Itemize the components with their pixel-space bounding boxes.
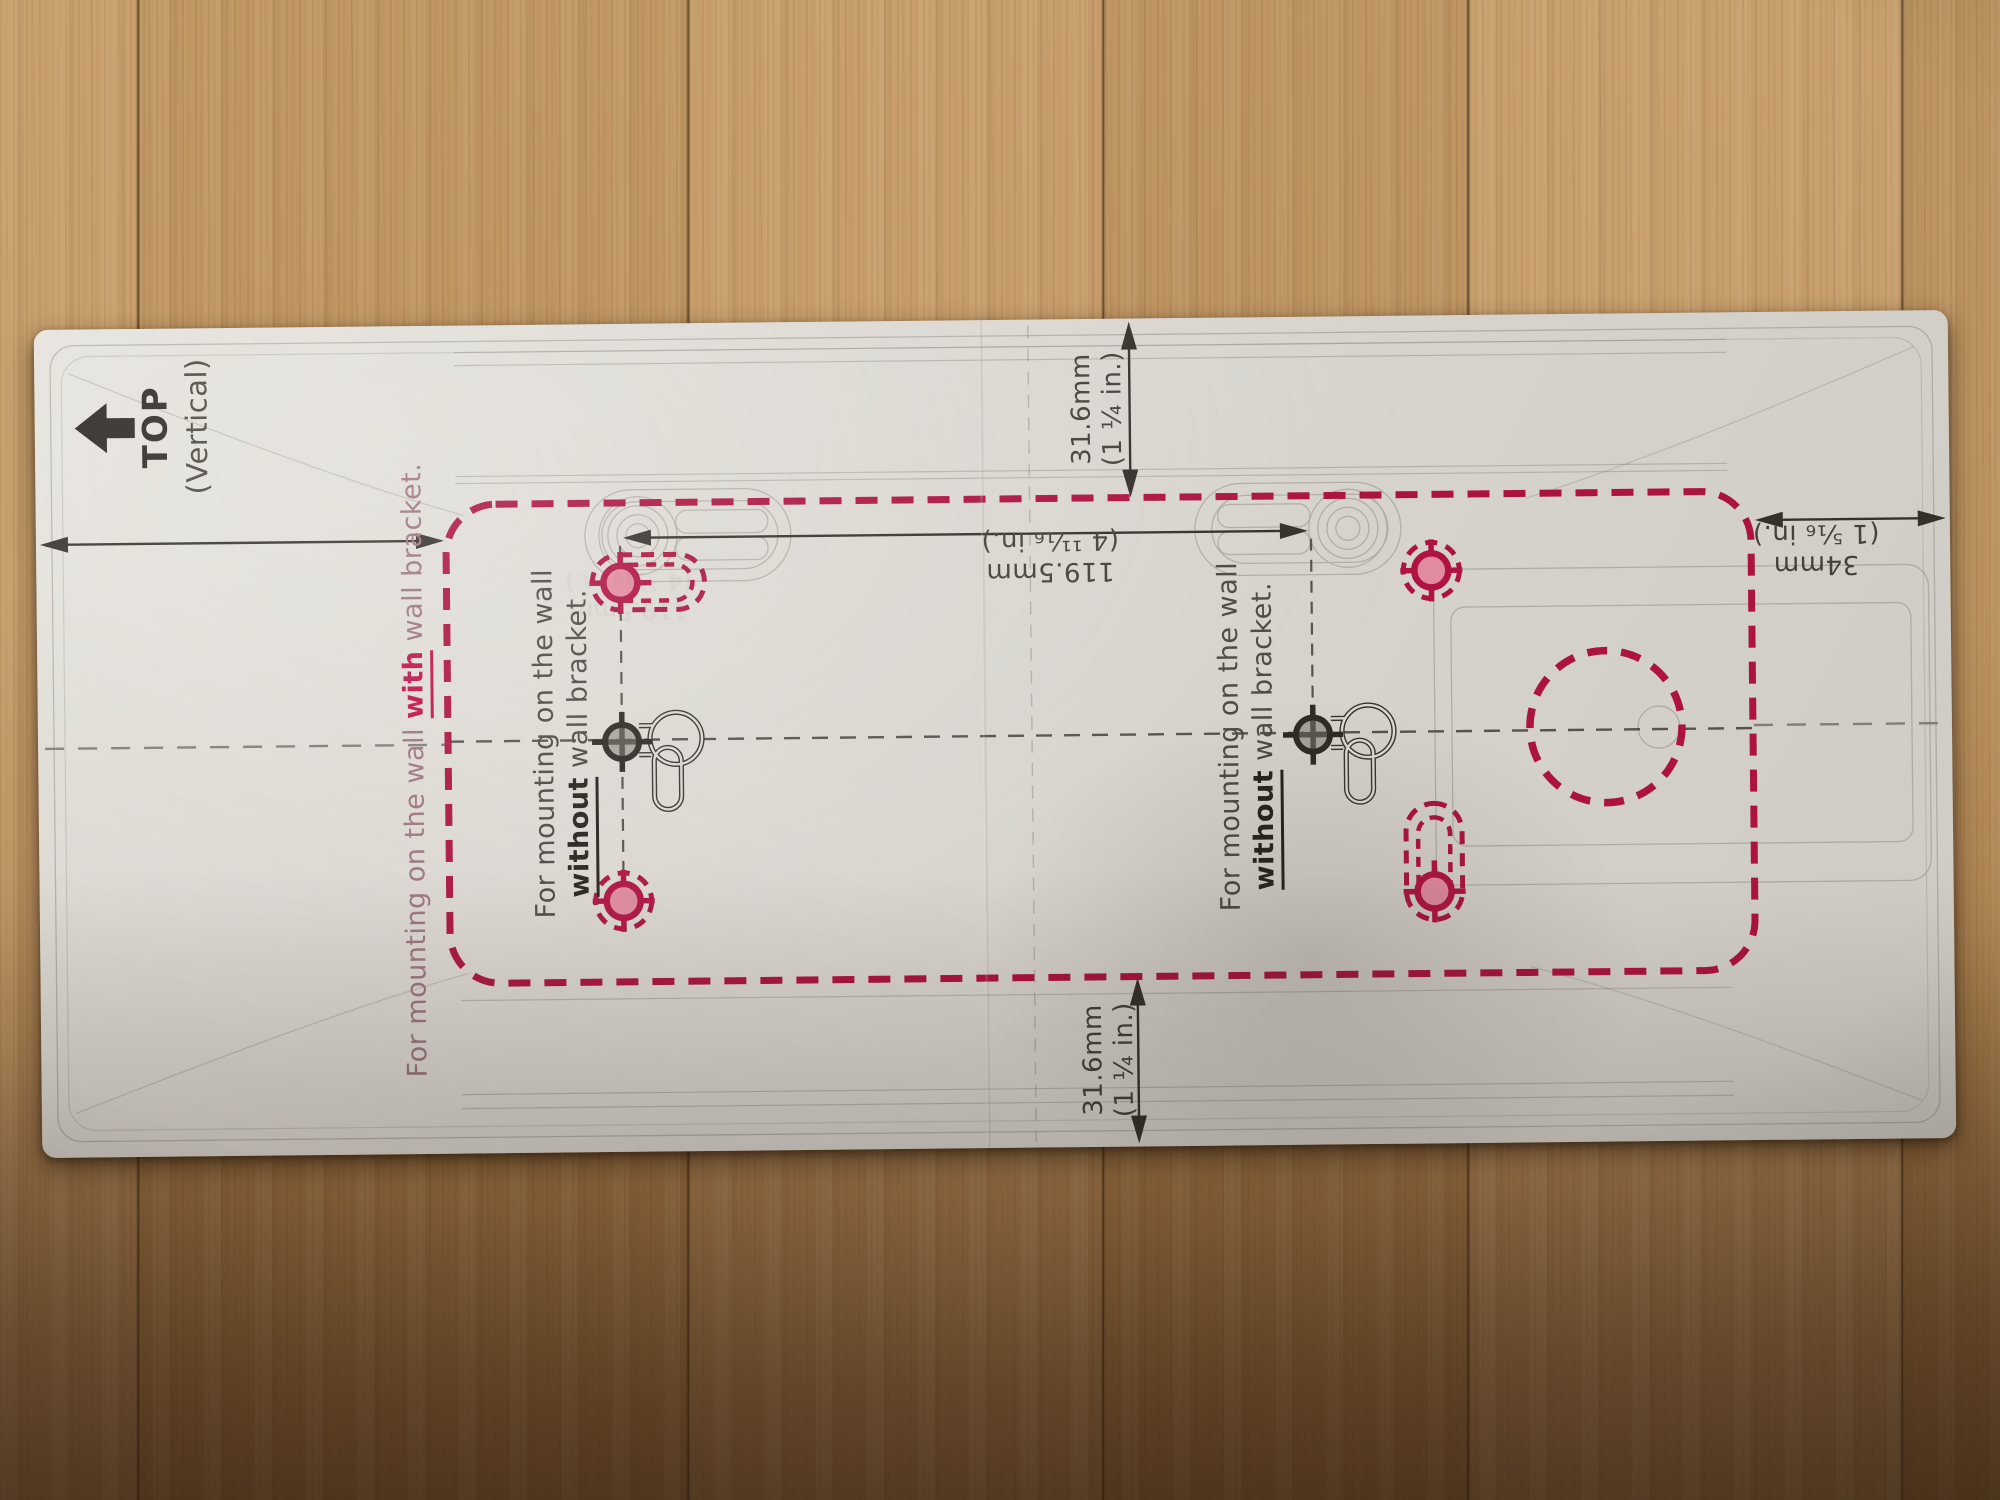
dimension-top-offset: 31.6mm (1 ¼ in.): [1066, 351, 1129, 467]
dimension-arrows: [38, 313, 1953, 1155]
top-offset-arrow: [1129, 328, 1131, 492]
dimension-side-offset: 34mm (1 ⁵⁄₁₆ in.): [1752, 517, 1880, 580]
dimension-mm: 31.6mm: [1066, 351, 1098, 466]
emboss-corner-curves: [68, 346, 1922, 1119]
screw-target-icon: [1403, 860, 1466, 923]
note-without-bracket-right: For mounting on the wall without wall br…: [1211, 561, 1283, 911]
dimension-inch: (1 ⁵⁄₁₆ in.): [1752, 517, 1879, 549]
note-text: wall bracket.: [1246, 582, 1279, 770]
emboss-lines: [50, 316, 1940, 1152]
note-text: For mounting on the wall: [1211, 562, 1249, 912]
note-text: wall bracket.: [396, 463, 429, 651]
note-emphasis: without: [1248, 770, 1284, 891]
center-guide-lines: [43, 532, 1948, 912]
screw-target-icon: [592, 870, 655, 933]
mounting-template-paper: TOP (Vertical) For mounting on the wall …: [34, 310, 1957, 1158]
template-print-graphics: [34, 310, 1957, 1158]
dimension-hole-spacing: 119.5mm (4 ¹¹⁄₁₆ in.): [981, 524, 1120, 587]
screw-target-black-icon: [1283, 704, 1344, 765]
note-text: For mounting on the wall: [399, 719, 434, 1078]
top-marker-sublabel: (Vertical): [179, 358, 214, 495]
top-marker: TOP (Vertical): [135, 358, 218, 495]
fold-line: [1028, 326, 1037, 1142]
photo-scene: TOP (Vertical) For mounting on the wall …: [0, 0, 2000, 1500]
top-direction-arrow-icon: [74, 403, 135, 454]
dimension-mm: 31.6mm: [1078, 1002, 1110, 1117]
dimension-inch: (1 ¼ in.): [1109, 1002, 1141, 1117]
note-with-bracket: For mounting on the wall with wall brack…: [395, 463, 435, 1078]
hole-spacing-arrow: [629, 531, 1302, 538]
show-through-ghost-text: 119.5mm (4 ¹¹⁄₁₆ in.): [564, 566, 692, 625]
top-marker-label: TOP: [135, 358, 177, 495]
edge-to-outline-arrow: [46, 541, 438, 545]
note-text: For mounting on the wall: [526, 569, 564, 919]
speaker-circle-dashed: [1529, 650, 1683, 804]
dimension-inch: (4 ¹¹⁄₁₆ in.): [981, 524, 1119, 556]
screw-target-icon: [1400, 539, 1463, 602]
dimension-bottom-offset: 31.6mm (1 ¼ in.): [1078, 1002, 1141, 1118]
dimension-mm: 34mm: [1753, 548, 1880, 580]
note-emphasis: without: [563, 777, 599, 898]
dimension-inch: (1 ¼ in.): [1097, 351, 1129, 466]
screw-target-black-icon: [592, 712, 653, 773]
dimension-mm: 119.5mm: [981, 555, 1119, 587]
note-emphasis: with: [398, 650, 434, 719]
